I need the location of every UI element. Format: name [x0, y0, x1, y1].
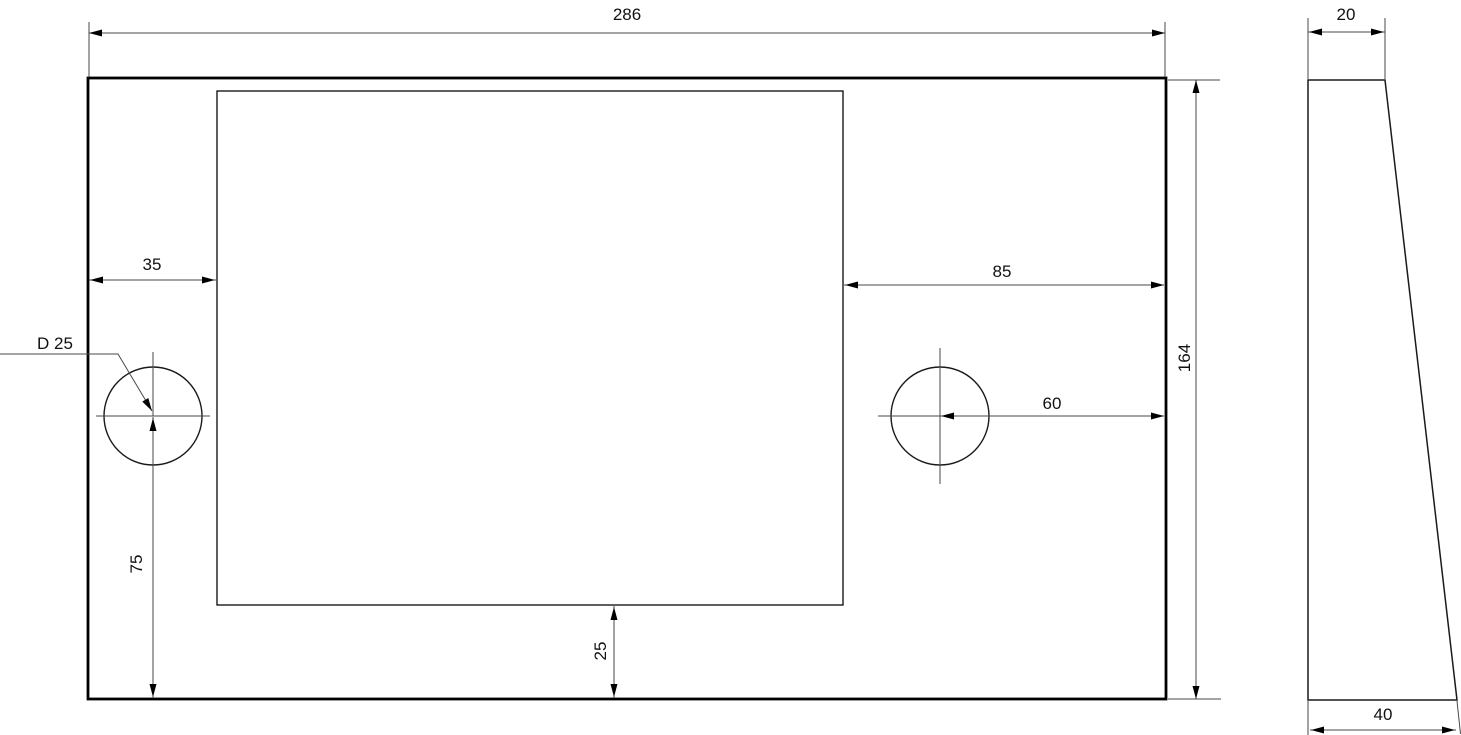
- arrowhead-down: [150, 684, 157, 697]
- arrowhead-right: [1442, 727, 1455, 734]
- dim-hole-diameter: D 25: [0, 334, 152, 411]
- arrowhead-up: [611, 607, 618, 620]
- dim-label-75: 75: [127, 555, 146, 574]
- arrowhead-left: [845, 282, 858, 289]
- dim-pocket-from-right: 85: [844, 262, 1164, 289]
- dim-side-bottom-width: 40: [1308, 701, 1461, 735]
- dim-right-hole-offset: 60: [941, 394, 1164, 420]
- arrowhead-diagonal: [142, 398, 152, 411]
- drawing-canvas: 286 164 35 85 60 75: [0, 0, 1461, 735]
- arrowhead-left: [941, 413, 954, 420]
- dim-label-d25: D 25: [37, 334, 73, 353]
- dim-side-top-width: 20: [1308, 5, 1385, 79]
- arrowhead-left: [1311, 727, 1324, 734]
- arrowhead-right: [1152, 30, 1165, 37]
- side-view-outline: [1308, 80, 1457, 700]
- side-view: [1308, 80, 1457, 700]
- extension-line: [1457, 701, 1461, 734]
- dim-label-20: 20: [1337, 5, 1356, 24]
- dim-label-25: 25: [591, 642, 610, 661]
- arrowhead-up: [150, 418, 157, 431]
- dim-label-60: 60: [1043, 394, 1062, 413]
- dim-label-286: 286: [613, 5, 641, 24]
- dim-label-164: 164: [1175, 344, 1194, 372]
- drawing-svg: 286 164 35 85 60 75: [0, 0, 1461, 735]
- arrowhead-left: [89, 30, 102, 37]
- dim-pocket-from-bottom: 25: [591, 606, 618, 698]
- dim-label-85: 85: [993, 262, 1012, 281]
- front-view: [88, 78, 1166, 699]
- arrowhead-right: [1371, 29, 1384, 36]
- dim-label-35: 35: [143, 255, 162, 274]
- dim-overall-height: 164: [1168, 80, 1221, 699]
- arrowhead-up: [1193, 80, 1200, 93]
- arrowhead-left: [1309, 29, 1322, 36]
- arrowhead-right: [202, 277, 215, 284]
- arrowhead-left: [90, 277, 103, 284]
- leader-line: [0, 354, 152, 411]
- arrowhead-right: [1151, 282, 1164, 289]
- dim-label-40: 40: [1374, 705, 1393, 724]
- dim-overall-width: 286: [89, 5, 1165, 77]
- arrowhead-down: [611, 684, 618, 697]
- arrowhead-right: [1151, 413, 1164, 420]
- front-view-outline: [88, 78, 1166, 699]
- arrowhead-down: [1193, 686, 1200, 699]
- dim-pocket-from-left: 35: [89, 255, 216, 284]
- pocket-outline: [217, 91, 843, 605]
- dim-left-hole-offset: 75: [127, 417, 157, 698]
